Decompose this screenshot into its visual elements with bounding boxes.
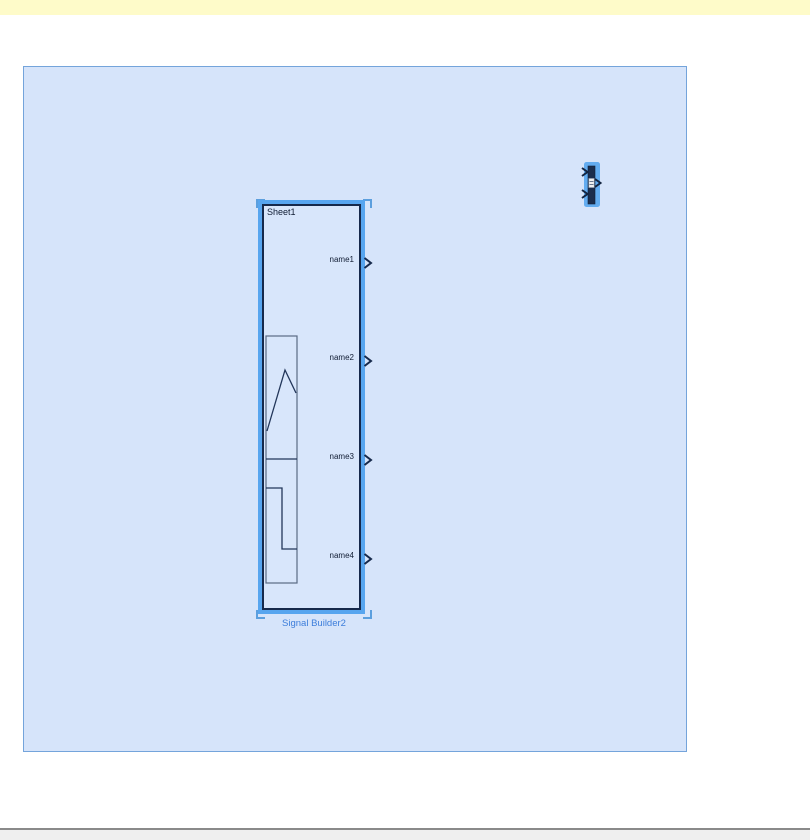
signal-builder-block[interactable]: Sheet1 name1 name2 name3 name4 <box>262 204 361 610</box>
mux-badge-icon <box>589 179 594 188</box>
port-label: name1 <box>292 255 354 265</box>
notification-bar <box>0 0 810 15</box>
port-label: name3 <box>292 452 354 462</box>
output-port-icon[interactable] <box>363 355 373 367</box>
model-editor-window: Sheet1 name1 name2 name3 name4 <box>0 0 810 840</box>
sheet-label: Sheet1 <box>267 207 296 217</box>
selection-bracket-top-right-icon <box>363 199 372 208</box>
status-bar <box>0 828 810 840</box>
port-label: name4 <box>292 551 354 561</box>
port-label: name2 <box>292 353 354 363</box>
signal-builder-block-group[interactable]: Sheet1 name1 name2 name3 name4 <box>256 199 372 625</box>
diagram-canvas[interactable]: Sheet1 name1 name2 name3 name4 <box>23 66 687 752</box>
mux-block[interactable] <box>577 157 605 211</box>
output-port-icon[interactable] <box>363 454 373 466</box>
output-port-icon[interactable] <box>363 257 373 269</box>
output-port-icon[interactable] <box>363 553 373 565</box>
block-name-caption[interactable]: Signal Builder2 <box>256 618 372 629</box>
